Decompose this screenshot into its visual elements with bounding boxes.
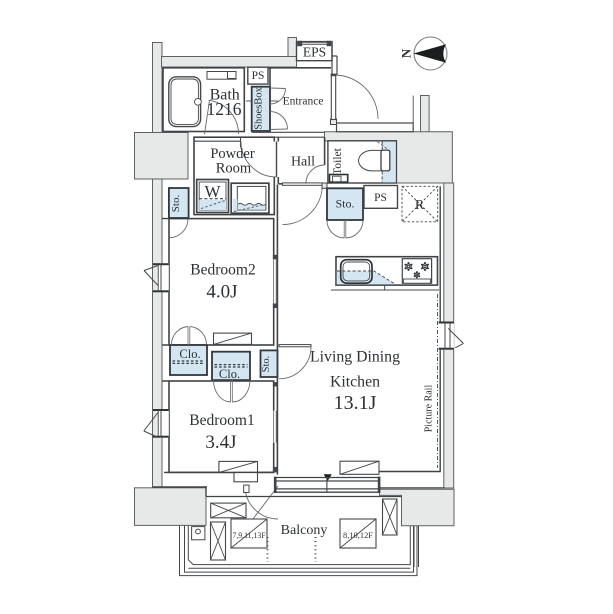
svg-text:4.0J: 4.0J xyxy=(206,282,237,303)
svg-text:Room: Room xyxy=(216,161,252,177)
svg-text:Toilet: Toilet xyxy=(332,147,344,174)
svg-text:Clo.: Clo. xyxy=(219,367,240,381)
svg-text:Picture Rail: Picture Rail xyxy=(424,385,435,433)
svg-text:Sto.: Sto. xyxy=(170,195,182,213)
svg-text:Entrance: Entrance xyxy=(283,95,324,107)
svg-text:3.4J: 3.4J xyxy=(205,432,236,453)
svg-text:Sto.: Sto. xyxy=(261,356,272,373)
svg-text:PS: PS xyxy=(374,192,387,204)
svg-text:7,9,11,13F: 7,9,11,13F xyxy=(233,531,267,540)
svg-text:Living Dining: Living Dining xyxy=(310,349,400,366)
svg-text:Clo.: Clo. xyxy=(179,347,200,361)
svg-text:1216: 1216 xyxy=(207,99,242,119)
svg-text:Kitchen: Kitchen xyxy=(330,374,380,391)
svg-text:PS: PS xyxy=(252,70,265,82)
svg-text:Bedroom1: Bedroom1 xyxy=(189,412,254,429)
svg-text:Hall: Hall xyxy=(291,155,315,170)
svg-text:N: N xyxy=(399,48,414,58)
svg-text:Balcony: Balcony xyxy=(281,523,328,538)
svg-text:8,10,12F: 8,10,12F xyxy=(343,531,374,540)
svg-text:R: R xyxy=(415,198,425,213)
svg-text:ShoesBox: ShoesBox xyxy=(254,86,265,129)
svg-text:Bedroom2: Bedroom2 xyxy=(190,262,255,279)
svg-text:W: W xyxy=(204,182,221,201)
svg-text:Sto.: Sto. xyxy=(335,197,354,211)
svg-text:EPS: EPS xyxy=(303,45,326,60)
svg-text:13.1J: 13.1J xyxy=(334,392,377,414)
